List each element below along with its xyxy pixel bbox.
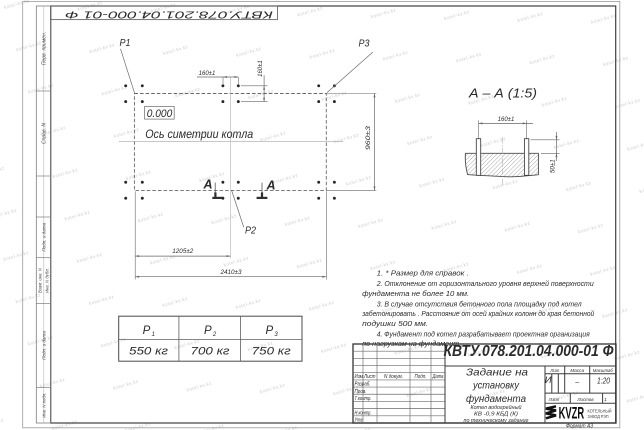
svg-text:2: 2 bbox=[212, 332, 217, 338]
svg-text:50±1: 50±1 bbox=[550, 159, 556, 173]
svg-text:3. В случае отсутствия бетонно: 3. В случае отсутствия бетонного пола пл… bbox=[377, 299, 582, 308]
svg-text:Р: Р bbox=[204, 325, 212, 337]
svg-text:установку: установку bbox=[472, 380, 520, 392]
svg-text:Масштаб: Масштаб bbox=[593, 368, 613, 374]
svg-text:1: 1 bbox=[604, 397, 607, 403]
svg-text:–: – bbox=[574, 379, 579, 386]
svg-text:1. * Размер для справок .: 1. * Размер для справок . bbox=[377, 269, 469, 278]
svg-text:Р: Р bbox=[265, 325, 273, 337]
svg-text:Т.контр.: Т.контр. bbox=[355, 396, 372, 402]
svg-text:Н.контр.: Н.контр. bbox=[355, 410, 372, 416]
svg-text:КВТУ.078.201.04.000-01 Ф: КВТУ.078.201.04.000-01 Ф bbox=[444, 343, 615, 360]
svg-text:Подп.: Подп. bbox=[415, 374, 427, 380]
svg-text:Пров.: Пров. bbox=[355, 389, 367, 395]
svg-text:Р3: Р3 bbox=[359, 39, 370, 50]
svg-text:ЗАВОД РЭП: ЗАВОД РЭП bbox=[588, 414, 609, 419]
svg-text:Масса: Масса bbox=[570, 368, 584, 374]
svg-text:Формат А3: Формат А3 bbox=[566, 423, 593, 429]
svg-text:Справ. N: Справ. N bbox=[42, 123, 48, 144]
svg-text:Разраб.: Разраб. bbox=[355, 382, 371, 388]
svg-text:Инв. N подл.: Инв. N подл. bbox=[42, 393, 47, 418]
svg-text:160±1: 160±1 bbox=[498, 117, 515, 123]
svg-text:фундамента не более 10 мм.: фундамента не более 10 мм. bbox=[362, 289, 469, 298]
svg-text:Лит: Лит bbox=[549, 368, 559, 374]
svg-text:КВТУ.078.201.04.000-01 Ф: КВТУ.078.201.04.000-01 Ф bbox=[65, 8, 273, 19]
svg-text:750 кг: 750 кг bbox=[252, 346, 292, 358]
svg-text:Котел водогрейный: Котел водогрейный bbox=[471, 404, 522, 411]
svg-text:И: И bbox=[545, 375, 552, 386]
svg-text:А: А bbox=[202, 177, 212, 191]
svg-text:Подп. и дата: Подп. и дата bbox=[42, 331, 47, 360]
svg-text:700 кг: 700 кг bbox=[191, 346, 231, 358]
svg-text:1:20: 1:20 bbox=[597, 377, 610, 386]
svg-text:Изм.Лист: Изм.Лист bbox=[355, 374, 376, 380]
svg-text:А: А bbox=[265, 178, 275, 192]
svg-text:960±3: 960±3 bbox=[365, 126, 372, 150]
svg-text:по техническому задание: по техническому задание bbox=[464, 418, 529, 424]
svg-text:2410±3: 2410±3 bbox=[219, 270, 242, 276]
svg-text:забетонировать . Расстояние от: забетонировать . Расстояние от осей край… bbox=[361, 309, 594, 318]
svg-text:Взам. инв. N: Взам. инв. N bbox=[37, 267, 42, 293]
svg-text:КОТЕЛЬНЫЙ: КОТЕЛЬНЫЙ bbox=[588, 409, 612, 414]
svg-text:подушки 500 мм.: подушки 500 мм. bbox=[362, 319, 428, 328]
svg-text:N докум.: N докум. bbox=[384, 374, 403, 380]
svg-text:KVZR: KVZR bbox=[559, 405, 585, 423]
svg-text:0.000: 0.000 bbox=[147, 108, 173, 120]
svg-text:Р: Р bbox=[143, 325, 151, 337]
svg-text:А – А (1:5): А – А (1:5) bbox=[468, 86, 537, 101]
svg-text:Задание на: Задание на bbox=[466, 367, 528, 379]
svg-text:1205±2: 1205±2 bbox=[172, 249, 194, 255]
svg-text:Перв. примен.: Перв. примен. bbox=[42, 32, 48, 65]
svg-text:Инв. N дубл.: Инв. N дубл. bbox=[44, 268, 49, 293]
svg-text:Утв.: Утв. bbox=[355, 418, 364, 424]
svg-text:1: 1 bbox=[152, 332, 155, 338]
svg-text:160±1: 160±1 bbox=[199, 71, 216, 77]
svg-text:КВ -0,9 КБД (К): КВ -0,9 КБД (К) bbox=[474, 412, 518, 418]
svg-text:Листов: Листов bbox=[577, 397, 594, 403]
svg-text:4. Фундамент под котел разраба: 4. Фундамент под котел разрабатывает про… bbox=[377, 329, 590, 338]
svg-text:Р2: Р2 bbox=[245, 226, 256, 237]
svg-text:Р1: Р1 bbox=[120, 38, 131, 49]
svg-text:550 кг: 550 кг bbox=[129, 346, 169, 358]
svg-text:Ось симетрии котла: Ось симетрии котла bbox=[145, 127, 253, 141]
svg-text:Дата: Дата bbox=[432, 374, 444, 380]
svg-text:фундамента: фундамента bbox=[466, 393, 526, 405]
svg-text:Подп. и дата: Подп. и дата bbox=[42, 222, 47, 251]
svg-text:160±1: 160±1 bbox=[258, 60, 264, 77]
svg-text:Лист: Лист bbox=[548, 397, 559, 403]
svg-text:2. Отклонение от горизонтально: 2. Отклонение от горизонтального уровня … bbox=[376, 279, 594, 288]
